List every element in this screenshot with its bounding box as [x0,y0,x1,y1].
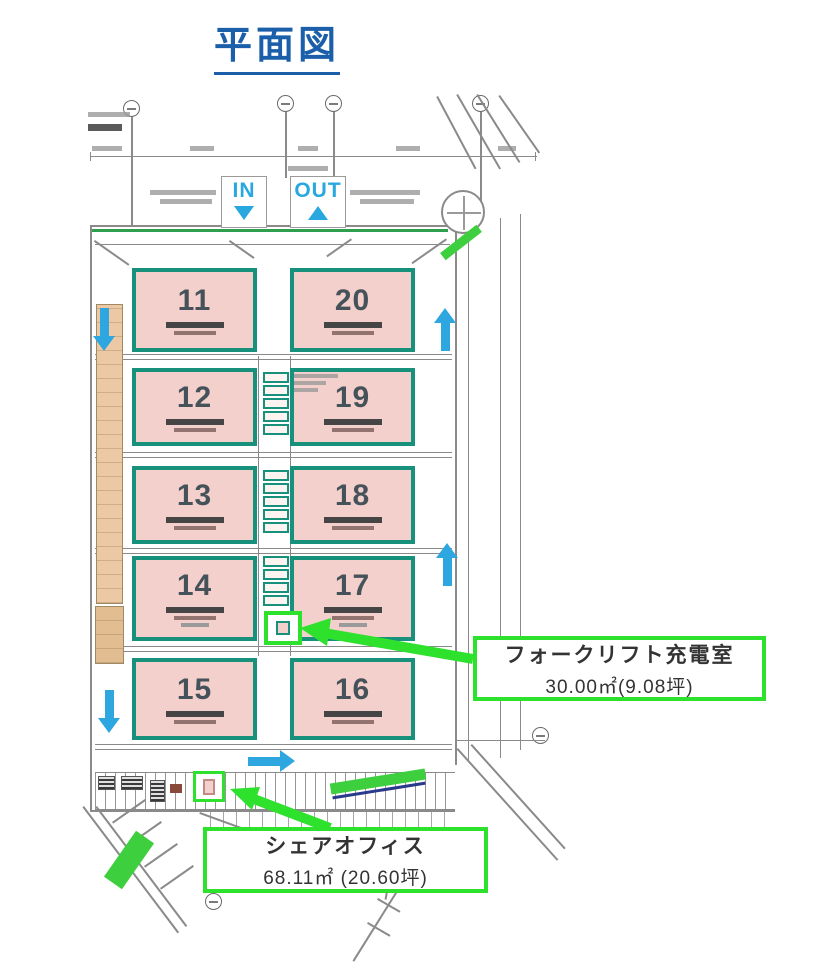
dimension-tick [90,152,91,161]
dock-line [95,244,450,245]
arrow-shaft [105,690,114,718]
unit-area-text [332,428,374,432]
unit-area-text [174,616,216,620]
unit-area-text [166,419,224,425]
unit-area-text [324,607,382,613]
unit-box-17: 17 [290,556,415,641]
unit-number: 18 [335,481,370,511]
traffic-arrow-down [98,690,120,733]
share-office-callout-title: シェアオフィス [265,830,426,860]
survey-line [353,881,404,962]
unit-box-18: 18 [290,466,415,544]
charging-room-stack [263,372,293,435]
parking-line [160,865,194,889]
unit-area-text [324,517,382,523]
charging-room-cell [276,621,290,635]
marker-leader-line [285,112,287,178]
unit-number: 13 [177,481,212,511]
road-line [455,740,545,741]
marker-leader-line [333,112,335,178]
unit-box-19: 19 [290,368,415,446]
unit-area-text [166,322,224,328]
charging-room-stack [263,556,293,606]
gate-out: OUT [290,176,346,228]
site-boundary [90,225,92,810]
unit-area-text [174,720,216,724]
unit-number: 15 [177,675,212,705]
annotation-text [88,124,122,131]
marker-leader-line [131,117,133,227]
share-office-highlight [193,771,225,802]
unit-area-text [324,711,382,717]
charging-room-cell [263,470,289,481]
grid-line [95,646,452,647]
unit-area-text [174,428,216,432]
share-office-room [203,779,215,795]
unit-area-text [332,526,374,530]
traffic-arrow-right [248,750,295,772]
arrow-down-icon [234,206,254,220]
unit-area-text [181,623,209,627]
annotation-text [150,190,216,195]
unit-area-text [324,419,382,425]
grid-line [95,354,452,355]
grid-line [95,553,452,554]
street-line [477,94,521,163]
unit-box-15: 15 [132,658,257,740]
unit-box-13: 13 [132,466,257,544]
arrow-shaft [100,308,109,336]
grid-line [95,359,452,360]
unit-number: 19 [335,383,370,413]
unit-area-text [166,607,224,613]
road-line [468,222,469,760]
unit-box-20: 20 [290,268,415,352]
unit-area-text [339,623,367,627]
annotation-text [288,166,328,171]
unit-box-12: 12 [132,368,257,446]
dimension-text [92,146,122,151]
annotation-text [294,374,338,378]
unit-number: 12 [177,383,212,413]
charging-room-cell [263,424,289,435]
unit-area-text [332,331,374,335]
unit-box-11: 11 [132,268,257,352]
charging-room-cell [263,483,289,494]
survey-marker [325,95,342,112]
arrow-shaft [248,757,280,766]
survey-tick [377,898,400,912]
charging-room-cell [263,411,289,422]
charging-room-cell [263,595,289,606]
charging-room-stack [263,470,293,533]
unit-number: 11 [178,286,212,316]
arrow-head [436,543,458,558]
dimension-tick [535,152,536,161]
charging-room-cell [263,582,289,593]
traffic-arrow-down [93,308,115,351]
unit-area-text [324,322,382,328]
arrow-head [93,336,115,351]
charging-room-cell [263,496,289,507]
equipment-block [98,776,115,790]
survey-marker [532,727,549,744]
annotation-text [294,381,326,385]
unit-number: 14 [177,571,212,601]
equipment-block [170,784,182,793]
grid-line [95,651,452,652]
charging-room-cell [263,569,289,580]
stall-line [95,809,455,810]
arrow-head [280,750,295,772]
arrow-head [98,718,120,733]
charging-room-cell [263,385,289,396]
arrow-head [434,308,456,323]
street-line [499,95,540,153]
page-title: 平面図 [214,14,340,75]
site-boundary [90,225,455,227]
unit-box-14: 14 [132,556,257,641]
unit-area-text [332,720,374,724]
perimeter-green-line [92,229,448,232]
ramp-strip [95,606,124,664]
arrow-shaft [441,323,450,351]
unit-area-text [332,616,374,620]
dimension-text [190,146,214,151]
equipment-block [150,780,165,802]
unit-area-text [166,711,224,717]
landscape-strip [104,831,154,889]
charging-room-cell [263,556,289,567]
forklift-charging-room-highlight [264,611,302,645]
equipment-block [121,776,143,790]
grid-line [95,548,452,549]
charging-room-cell [263,398,289,409]
share-office-callout: シェアオフィス 68.11㎡ (20.60坪) [203,827,488,893]
arrow-up-icon [308,206,328,220]
unit-box-16: 16 [290,658,415,740]
unit-area-text [174,331,216,335]
chamfer-line [229,240,254,258]
unit-number: 20 [335,286,370,316]
unit-area-text [166,517,224,523]
annotation-text [160,199,212,204]
arrow-shaft [443,558,452,586]
share-office-callout-area: 68.11㎡ (20.60坪) [263,863,428,890]
unit-number: 16 [335,675,370,705]
grid-line [95,744,452,745]
charging-room-cell [263,509,289,520]
traffic-arrow-up [434,308,456,351]
charging-room-cell [263,372,289,383]
dimension-text [396,146,420,151]
forklift-callout-title: フォークリフト充電室 [505,639,735,669]
charging-room-cell [263,522,289,533]
unit-area-text [174,526,216,530]
annotation-text [88,112,130,117]
chamfer-line [327,239,352,257]
annotation-text [294,388,318,392]
gate-out-label: OUT [294,179,341,203]
unit-number: 17 [335,571,370,601]
forklift-callout-area: 30.00㎡(9.08坪) [545,672,693,699]
traffic-arrow-up [436,543,458,586]
floor-plan-page: 平面図 IN [0,0,818,980]
grid-line [95,452,452,453]
survey-marker [277,95,294,112]
gate-in: IN [221,176,267,228]
dimension-text [298,146,318,151]
gate-in-label: IN [233,179,256,203]
forklift-callout: フォークリフト充電室 30.00㎡(9.08坪) [473,636,766,701]
site-boundary [455,220,457,765]
corridor-line [258,356,259,656]
annotation-text [360,199,414,204]
street-line [437,96,477,169]
survey-marker [205,893,222,910]
grid-line [95,457,452,458]
annotation-text [350,190,420,195]
